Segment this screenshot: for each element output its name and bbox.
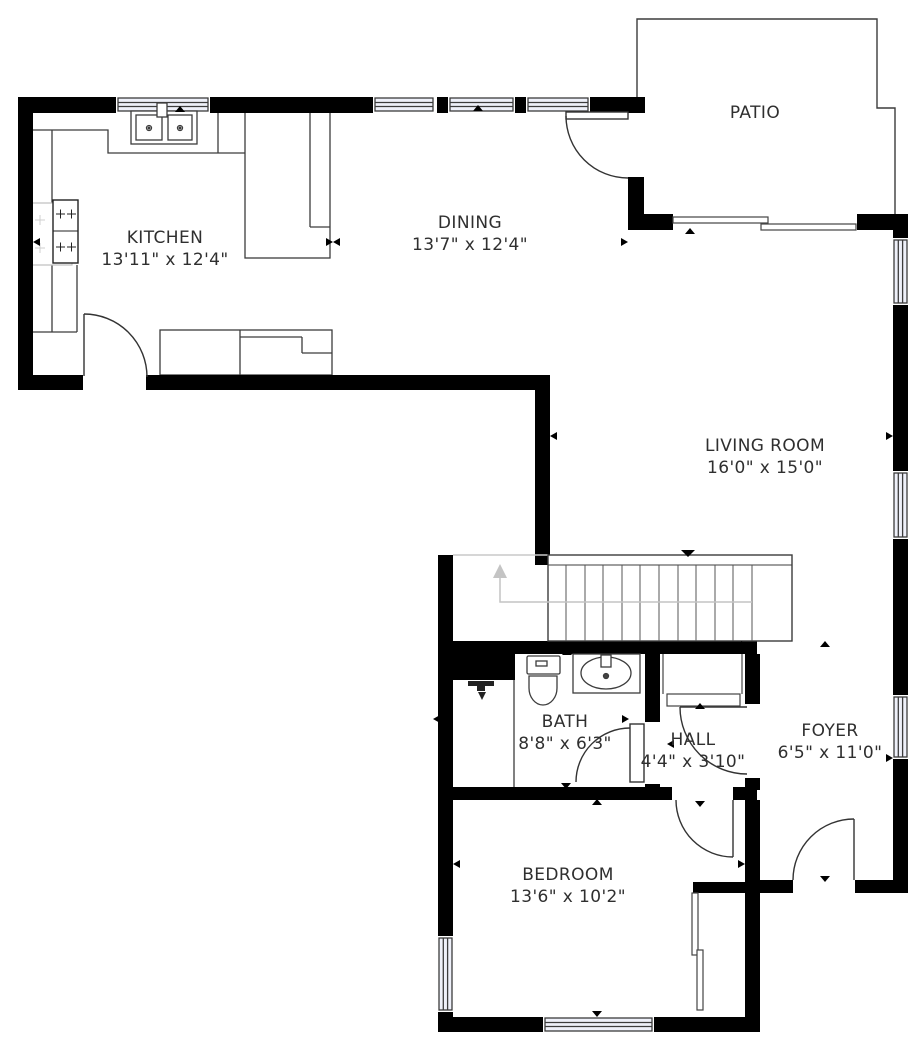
- room-label-bedroom: BEDROOM 13'6" x 10'2": [510, 864, 626, 908]
- room-label-dining: DINING 13'7" x 12'4": [412, 212, 528, 256]
- room-dimensions: 4'4" x 3'10": [641, 751, 746, 773]
- window: [545, 1018, 652, 1031]
- room-dimensions: 8'8" x 6'3": [518, 733, 612, 755]
- window: [528, 98, 588, 111]
- door-entry: [793, 819, 854, 880]
- floor-plan-drawing: [0, 0, 923, 1050]
- shower-icon: [468, 680, 514, 787]
- closet-hall: [663, 654, 742, 706]
- toilet-icon: [527, 656, 560, 705]
- room-dimensions: 6'5" x 11'0": [778, 742, 883, 764]
- stove-icon: [30, 200, 78, 265]
- room-dimensions: 13'11" x 12'4": [101, 249, 228, 271]
- sliding-door-patio: [673, 217, 856, 230]
- bath-sink-icon: [573, 654, 640, 693]
- room-name: BEDROOM: [510, 864, 626, 886]
- window: [450, 98, 513, 111]
- door-patio-dining: [566, 112, 628, 178]
- room-name: PATIO: [730, 102, 780, 124]
- room-name: KITCHEN: [101, 227, 228, 249]
- window: [894, 697, 907, 757]
- room-name: FOYER: [778, 720, 883, 742]
- room-dimensions: 13'7" x 12'4": [412, 234, 528, 256]
- window: [894, 240, 907, 303]
- room-name: HALL: [641, 729, 746, 751]
- room-dimensions: 13'6" x 10'2": [510, 886, 626, 908]
- window: [375, 98, 433, 111]
- room-label-patio: PATIO: [730, 102, 780, 124]
- room-name: LIVING ROOM: [705, 435, 825, 457]
- room-label-kitchen: KITCHEN 13'11" x 12'4": [101, 227, 228, 271]
- window: [894, 473, 907, 537]
- room-label-bath: BATH 8'8" x 6'3": [518, 711, 612, 755]
- room-label-hall: HALL 4'4" x 3'10": [641, 729, 746, 773]
- room-name: BATH: [518, 711, 612, 733]
- room-label-living-room: LIVING ROOM 16'0" x 15'0": [705, 435, 825, 479]
- floor-plan: KITCHEN 13'11" x 12'4" DINING 13'7" x 12…: [0, 0, 923, 1050]
- room-label-foyer: FOYER 6'5" x 11'0": [778, 720, 883, 764]
- door-bedroom: [676, 800, 733, 857]
- stairs: [453, 555, 792, 641]
- door-kitchen: [84, 314, 147, 377]
- window: [439, 938, 452, 1010]
- room-name: DINING: [412, 212, 528, 234]
- sliding-door-bedroom: [692, 893, 703, 1010]
- room-dimensions: 16'0" x 15'0": [705, 457, 825, 479]
